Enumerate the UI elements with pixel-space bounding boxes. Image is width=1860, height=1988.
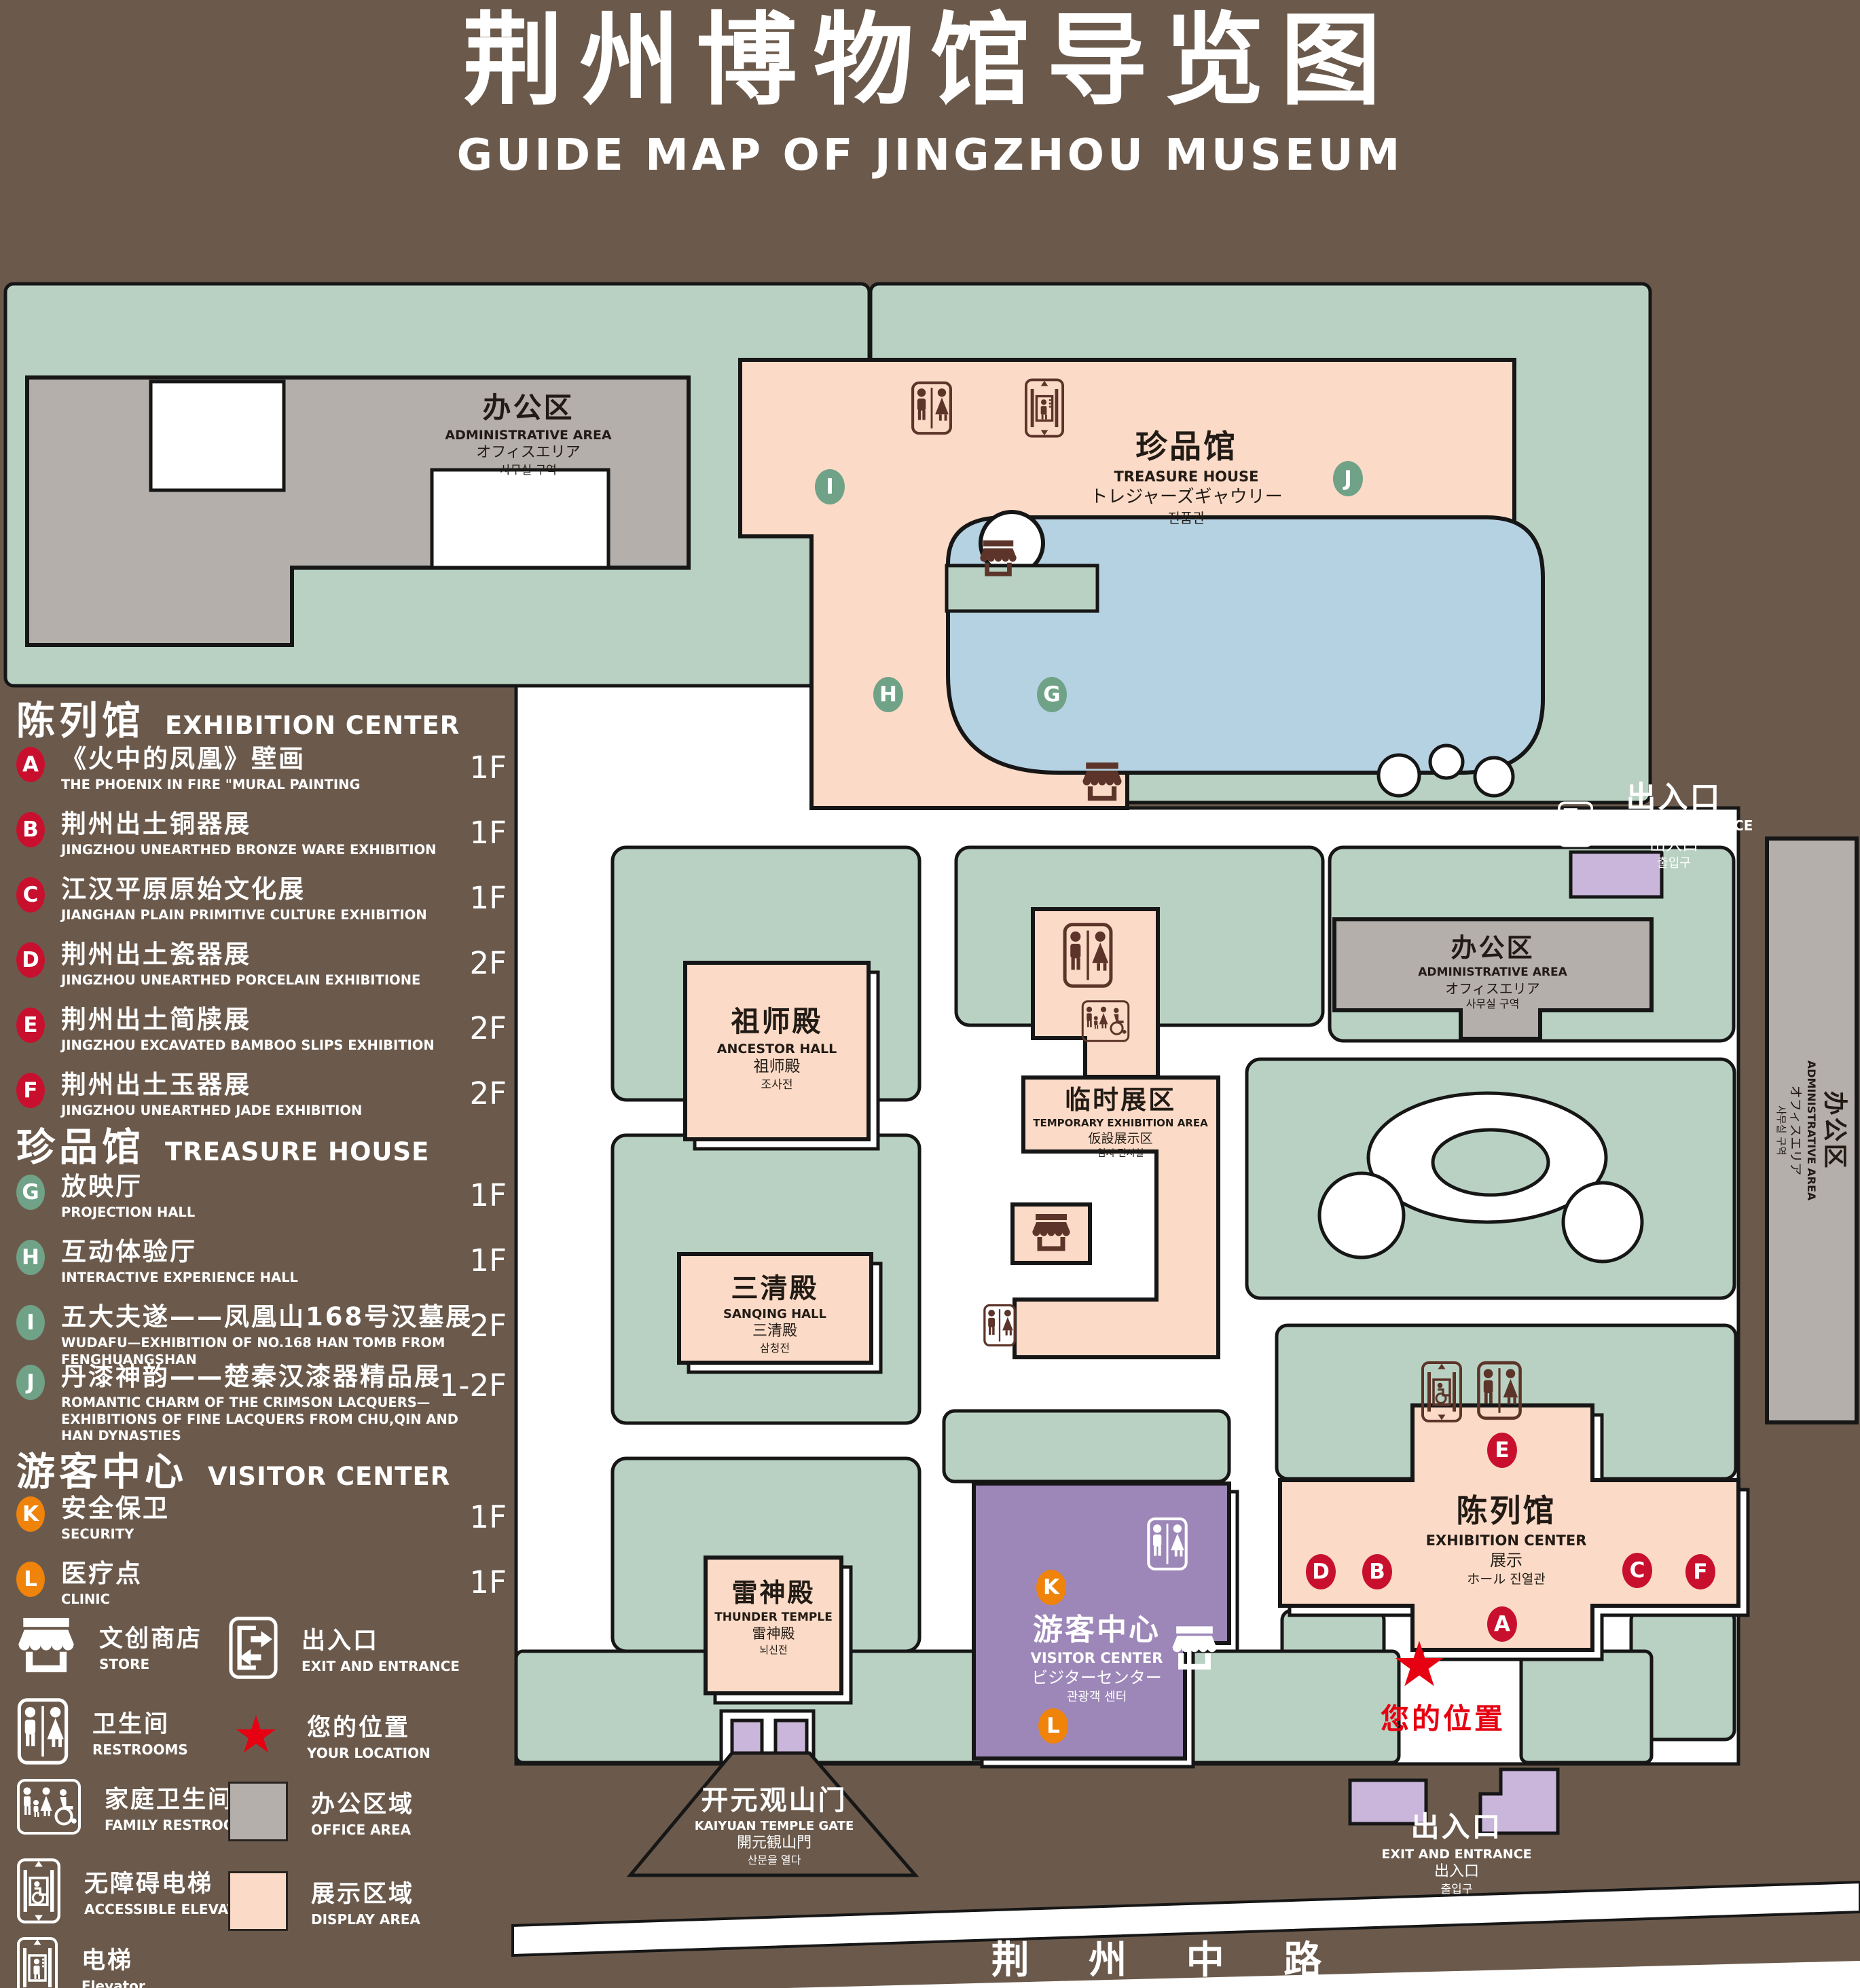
legend-symbol-display-area: 展示区域DISPLAY AREA: [228, 1871, 420, 1931]
family-restroom-icon: [1081, 999, 1130, 1043]
map-marker-F: F: [1685, 1554, 1715, 1589]
restroom-icon: [1062, 922, 1114, 989]
floor-badge: 1-2F: [439, 1367, 507, 1403]
label-admin-e: 办公区ADMINISTRATIVE AREA オフィスエリア사무실 구역: [1418, 932, 1567, 1012]
map-marker-A: A: [1487, 1606, 1517, 1642]
legend-item-F: F 荆州出土玉器展JINGZHOU UNEARTHED JADE EXHIBIT…: [16, 1070, 507, 1120]
floor-badge: 1F: [469, 1564, 507, 1600]
floor-badge: 1F: [469, 1499, 507, 1535]
floor-badge: 2F: [469, 1308, 507, 1344]
floor-badge: 2F: [469, 1075, 507, 1111]
map-marker-J: J: [1333, 461, 1363, 496]
marker-K: K: [16, 1496, 45, 1532]
label-exhibition-center: 陈列馆EXHIBITION CENTER 展示ホール 진열관: [1426, 1491, 1587, 1588]
store-icon: [979, 538, 1018, 579]
label-treasure-house: 珍品馆TREASURE HOUSE トレジャーズギャウリー진품관: [1090, 426, 1282, 527]
marker-C: C: [16, 877, 45, 913]
legend-item-L: L 医疗点CLINIC 1F: [16, 1559, 507, 1608]
floor-badge: 1F: [469, 750, 507, 786]
map-marker-H: H: [873, 677, 903, 712]
label-sanqing-hall: 三清殿SANQING HALL 三清殿삼청전: [723, 1271, 826, 1356]
label-temporary-exhibition: 临时展区TEMPORARY EXHIBITION AREA 仮設展示区임시 전시…: [1033, 1084, 1207, 1160]
floor-badge: 1F: [469, 1177, 507, 1213]
legend-item-I: I 五大夫遂——凤凰山168号汉墓展WUDAFU—EXHIBITION OF N…: [16, 1302, 507, 1368]
marker-B: B: [16, 812, 45, 847]
legend-section-treasure-house: 珍品馆TREASURE HOUSE: [16, 1116, 429, 1172]
legend-symbol-restrooms: 卫生间RESTROOMS: [16, 1697, 188, 1765]
legend-item-B: B 荆州出土铜器展JINGZHOU UNEARTHED BRONZE WARE …: [16, 809, 507, 859]
legend-item-A: A 《火中的凤凰》壁画THE PHOENIX IN FIRE "MURAL PA…: [16, 744, 507, 794]
label-thunder-temple: 雷神殿THUNDER TEMPLE 雷神殿뇌신전: [714, 1577, 833, 1657]
marker-D: D: [16, 942, 45, 978]
marker-J: J: [16, 1365, 45, 1400]
store-icon: [1081, 760, 1123, 804]
store-icon: [16, 1616, 76, 1676]
display-area-swatch: [228, 1871, 288, 1931]
label-your-location: 您的位置: [1381, 1696, 1506, 1737]
marker-E: E: [16, 1008, 45, 1043]
restroom-icon: [979, 1304, 1020, 1347]
label-road: 荆 州 中 路: [991, 1930, 1345, 1985]
accessible-elevator-icon: [16, 1858, 61, 1924]
restroom-icon: [16, 1697, 69, 1765]
garden-island: [1433, 1130, 1548, 1195]
restroom-icon: [911, 378, 953, 439]
floor-badge: 2F: [469, 945, 507, 981]
office-area-swatch: [228, 1782, 288, 1841]
exit-icon: [1557, 800, 1594, 848]
floor-badge: 1F: [469, 880, 507, 916]
legend-section-exhibition-center: 陈列馆EXHIBITION CENTER: [16, 690, 460, 745]
guide-map-poster: 荆州博物馆导览图 GUIDE MAP OF JINGZHOU MUSEUM: [0, 0, 1860, 1988]
accessible-elevator-icon: [1421, 1361, 1463, 1423]
label-exit-ne: 出入口EXIT AND ENTRANCE 出入口출입구: [1595, 778, 1753, 872]
marker-H: H: [16, 1240, 45, 1275]
marker-I: I: [16, 1305, 45, 1340]
floor-badge: 1F: [469, 1242, 507, 1278]
restroom-icon: [1146, 1517, 1188, 1571]
legend-item-E: E 荆州出土简牍展JINGZHOU EXCAVATED BAMBOO SLIPS…: [16, 1005, 507, 1054]
your-location-icon: ★: [228, 1709, 284, 1761]
label-gate: 开元观山门KAIYUAN TEMPLE GATE 開元観山門산문을 열다: [695, 1783, 854, 1868]
legend-item-J: J 丹漆神韵——楚秦汉漆器精品展ROMANTIC CHARM OF THE CR…: [16, 1362, 507, 1445]
label-exit-s: 出入口EXIT AND ENTRANCE 出入口출입구: [1381, 1809, 1531, 1897]
marker-F: F: [16, 1073, 45, 1108]
restroom-icon: [1476, 1357, 1522, 1424]
elevator-icon: [1024, 378, 1065, 439]
map-marker-D: D: [1306, 1554, 1336, 1589]
map-marker-I: I: [815, 469, 845, 504]
legend-symbol-accessible-elevator: 无障碍电梯ACCESSIBLE ELEVATOR: [16, 1858, 259, 1924]
legend-symbol-office-area: 办公区域OFFICE AREA: [228, 1782, 414, 1841]
family-restroom-icon: [16, 1778, 81, 1836]
marker-A: A: [16, 747, 45, 782]
map-marker-B: B: [1362, 1554, 1392, 1589]
label-visitor-center: 游客中心VISITOR CENTER ビジターセンター관광객 센터: [1031, 1610, 1163, 1705]
legend-section-visitor-center: 游客中心VISITOR CENTER: [16, 1441, 450, 1496]
legend-item-C: C 江汉平原原始文化展JIANGHAN PLAIN PRIMITIVE CULT…: [16, 875, 507, 924]
marker-G: G: [16, 1175, 45, 1210]
label-ancestor-hall: 祖师殿ANCESTOR HALL 祖师殿조사전: [717, 1004, 837, 1092]
map-marker-L: L: [1038, 1708, 1068, 1744]
exit-icon: [228, 1616, 278, 1680]
legend-item-D: D 荆州出土瓷器展JINGZHOU UNEARTHED PORCELAIN EX…: [16, 940, 507, 989]
legend-symbol-family-restrooms: 家庭卫生间FAMILY RESTROOMS: [16, 1778, 258, 1836]
store-icon: [1171, 1621, 1218, 1676]
legend-symbol-your-location: ★ 您的位置YOUR LOCATION: [228, 1708, 431, 1761]
floor-badge: 2F: [469, 1010, 507, 1046]
legend-symbol-exit: 出入口EXIT AND ENTRANCE: [228, 1616, 460, 1680]
site-map: [0, 0, 1860, 1988]
legend-item-K: K 安全保卫SECURITY 1F: [16, 1494, 507, 1543]
map-marker-K: K: [1036, 1570, 1066, 1605]
map-marker-G: G: [1037, 677, 1067, 712]
your-location-icon: ★: [1391, 1634, 1447, 1696]
legend-item-H: H 互动体验厅INTERACTIVE EXPERIENCE HALL 1F: [16, 1237, 507, 1287]
label-admin-strip: 办公区ADMINISTRATIVE AREA オフィスエリア사무실 구역: [1774, 1061, 1850, 1201]
legend-symbol-elevator: 电梯Elevator: [16, 1936, 145, 1988]
store-icon: [1031, 1211, 1072, 1255]
label-admin-nw: 办公区ADMINISTRATIVE AREA オフィスエリア사무실 구역: [445, 390, 611, 478]
marker-L: L: [16, 1562, 45, 1597]
legend-item-G: G 放映厅PROJECTION HALL 1F: [16, 1172, 507, 1221]
map-marker-C: C: [1622, 1553, 1652, 1588]
legend-symbol-store: 文创商店STORE: [16, 1616, 202, 1676]
floor-badge: 1F: [469, 815, 507, 851]
elevator-icon: [16, 1936, 58, 1988]
map-marker-E: E: [1487, 1433, 1517, 1468]
